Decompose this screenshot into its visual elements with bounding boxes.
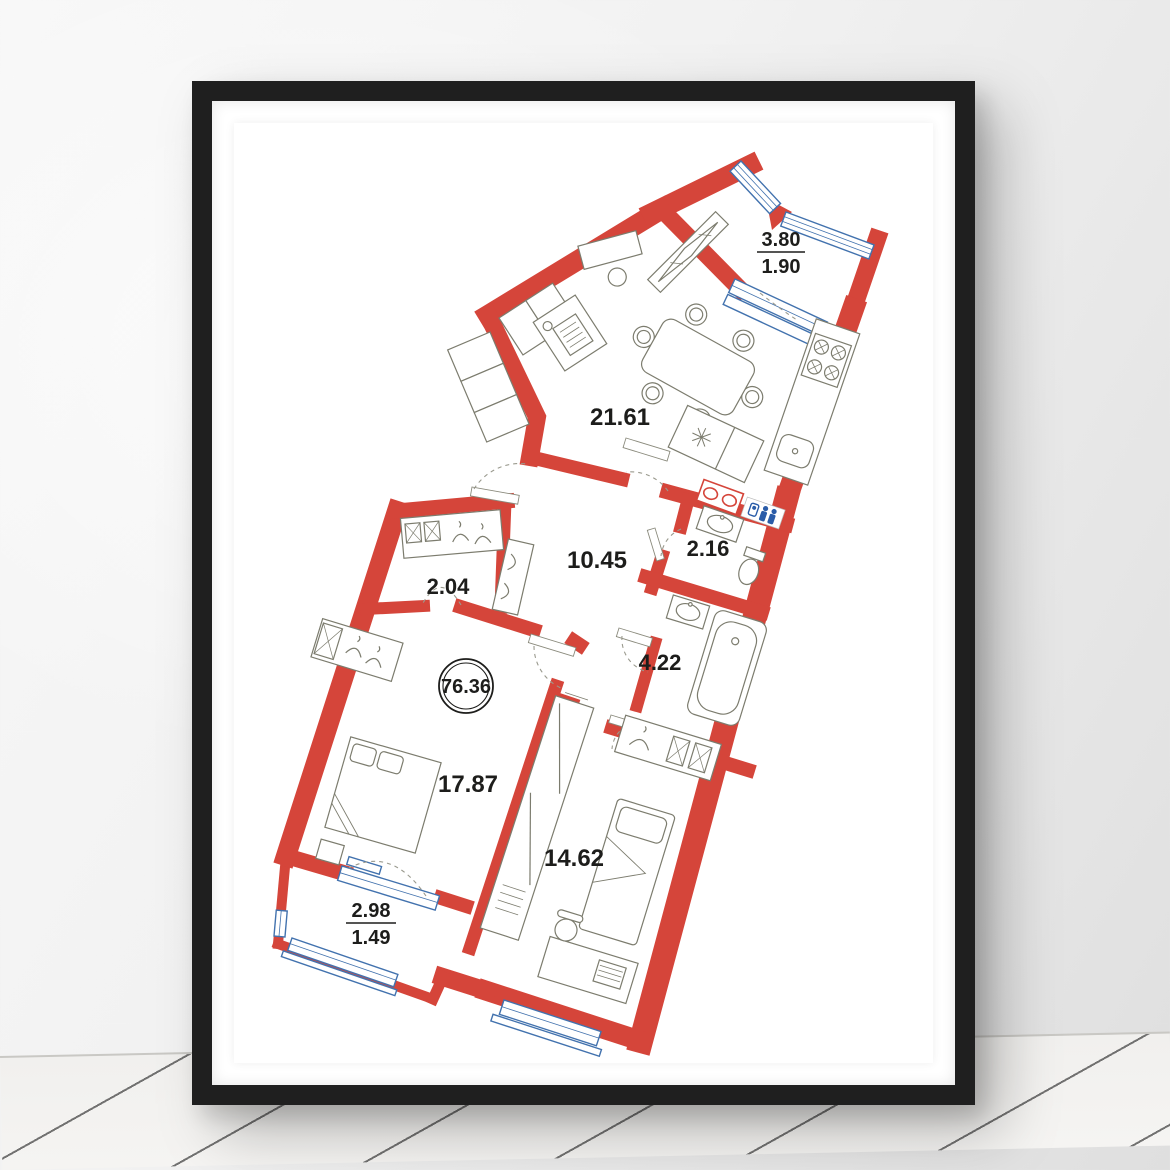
room-label-bathroom: 4.22 xyxy=(639,650,682,675)
room-label-living-kitchen: 21.61 xyxy=(590,404,650,431)
room-label-bedroom-second: 14.62 xyxy=(544,845,604,872)
balcony-top-area-full: 3.80 xyxy=(762,229,801,251)
room-label-wardrobe: 2.04 xyxy=(427,574,471,599)
wardrobe-shelf xyxy=(400,510,503,559)
room-label-wc: 2.16 xyxy=(687,536,730,561)
balcony-top-area-half: 1.90 xyxy=(762,256,801,278)
floorplan-drawing: 21.61 10.45 2.16 2.04 4.22 17.87 14.62 3… xyxy=(0,0,1170,1170)
total-area-badge: 76.36 xyxy=(439,659,493,713)
room-label-bedroom-main: 17.87 xyxy=(438,771,498,798)
tall-cabinet xyxy=(648,212,729,293)
kitchen-counter xyxy=(764,319,860,485)
room-label-hallway: 10.45 xyxy=(567,547,627,574)
balcony-bottom-area-full: 2.98 xyxy=(352,900,391,922)
desk xyxy=(538,936,638,1003)
balcony-side-window xyxy=(274,910,287,937)
kitchen-island xyxy=(668,405,764,482)
total-area-value: 76.36 xyxy=(441,676,491,698)
bedroom2-wardrobe xyxy=(615,715,722,781)
double-bed xyxy=(325,737,441,853)
balcony-bottom-area-half: 1.49 xyxy=(352,927,391,949)
console-desk xyxy=(578,231,649,294)
